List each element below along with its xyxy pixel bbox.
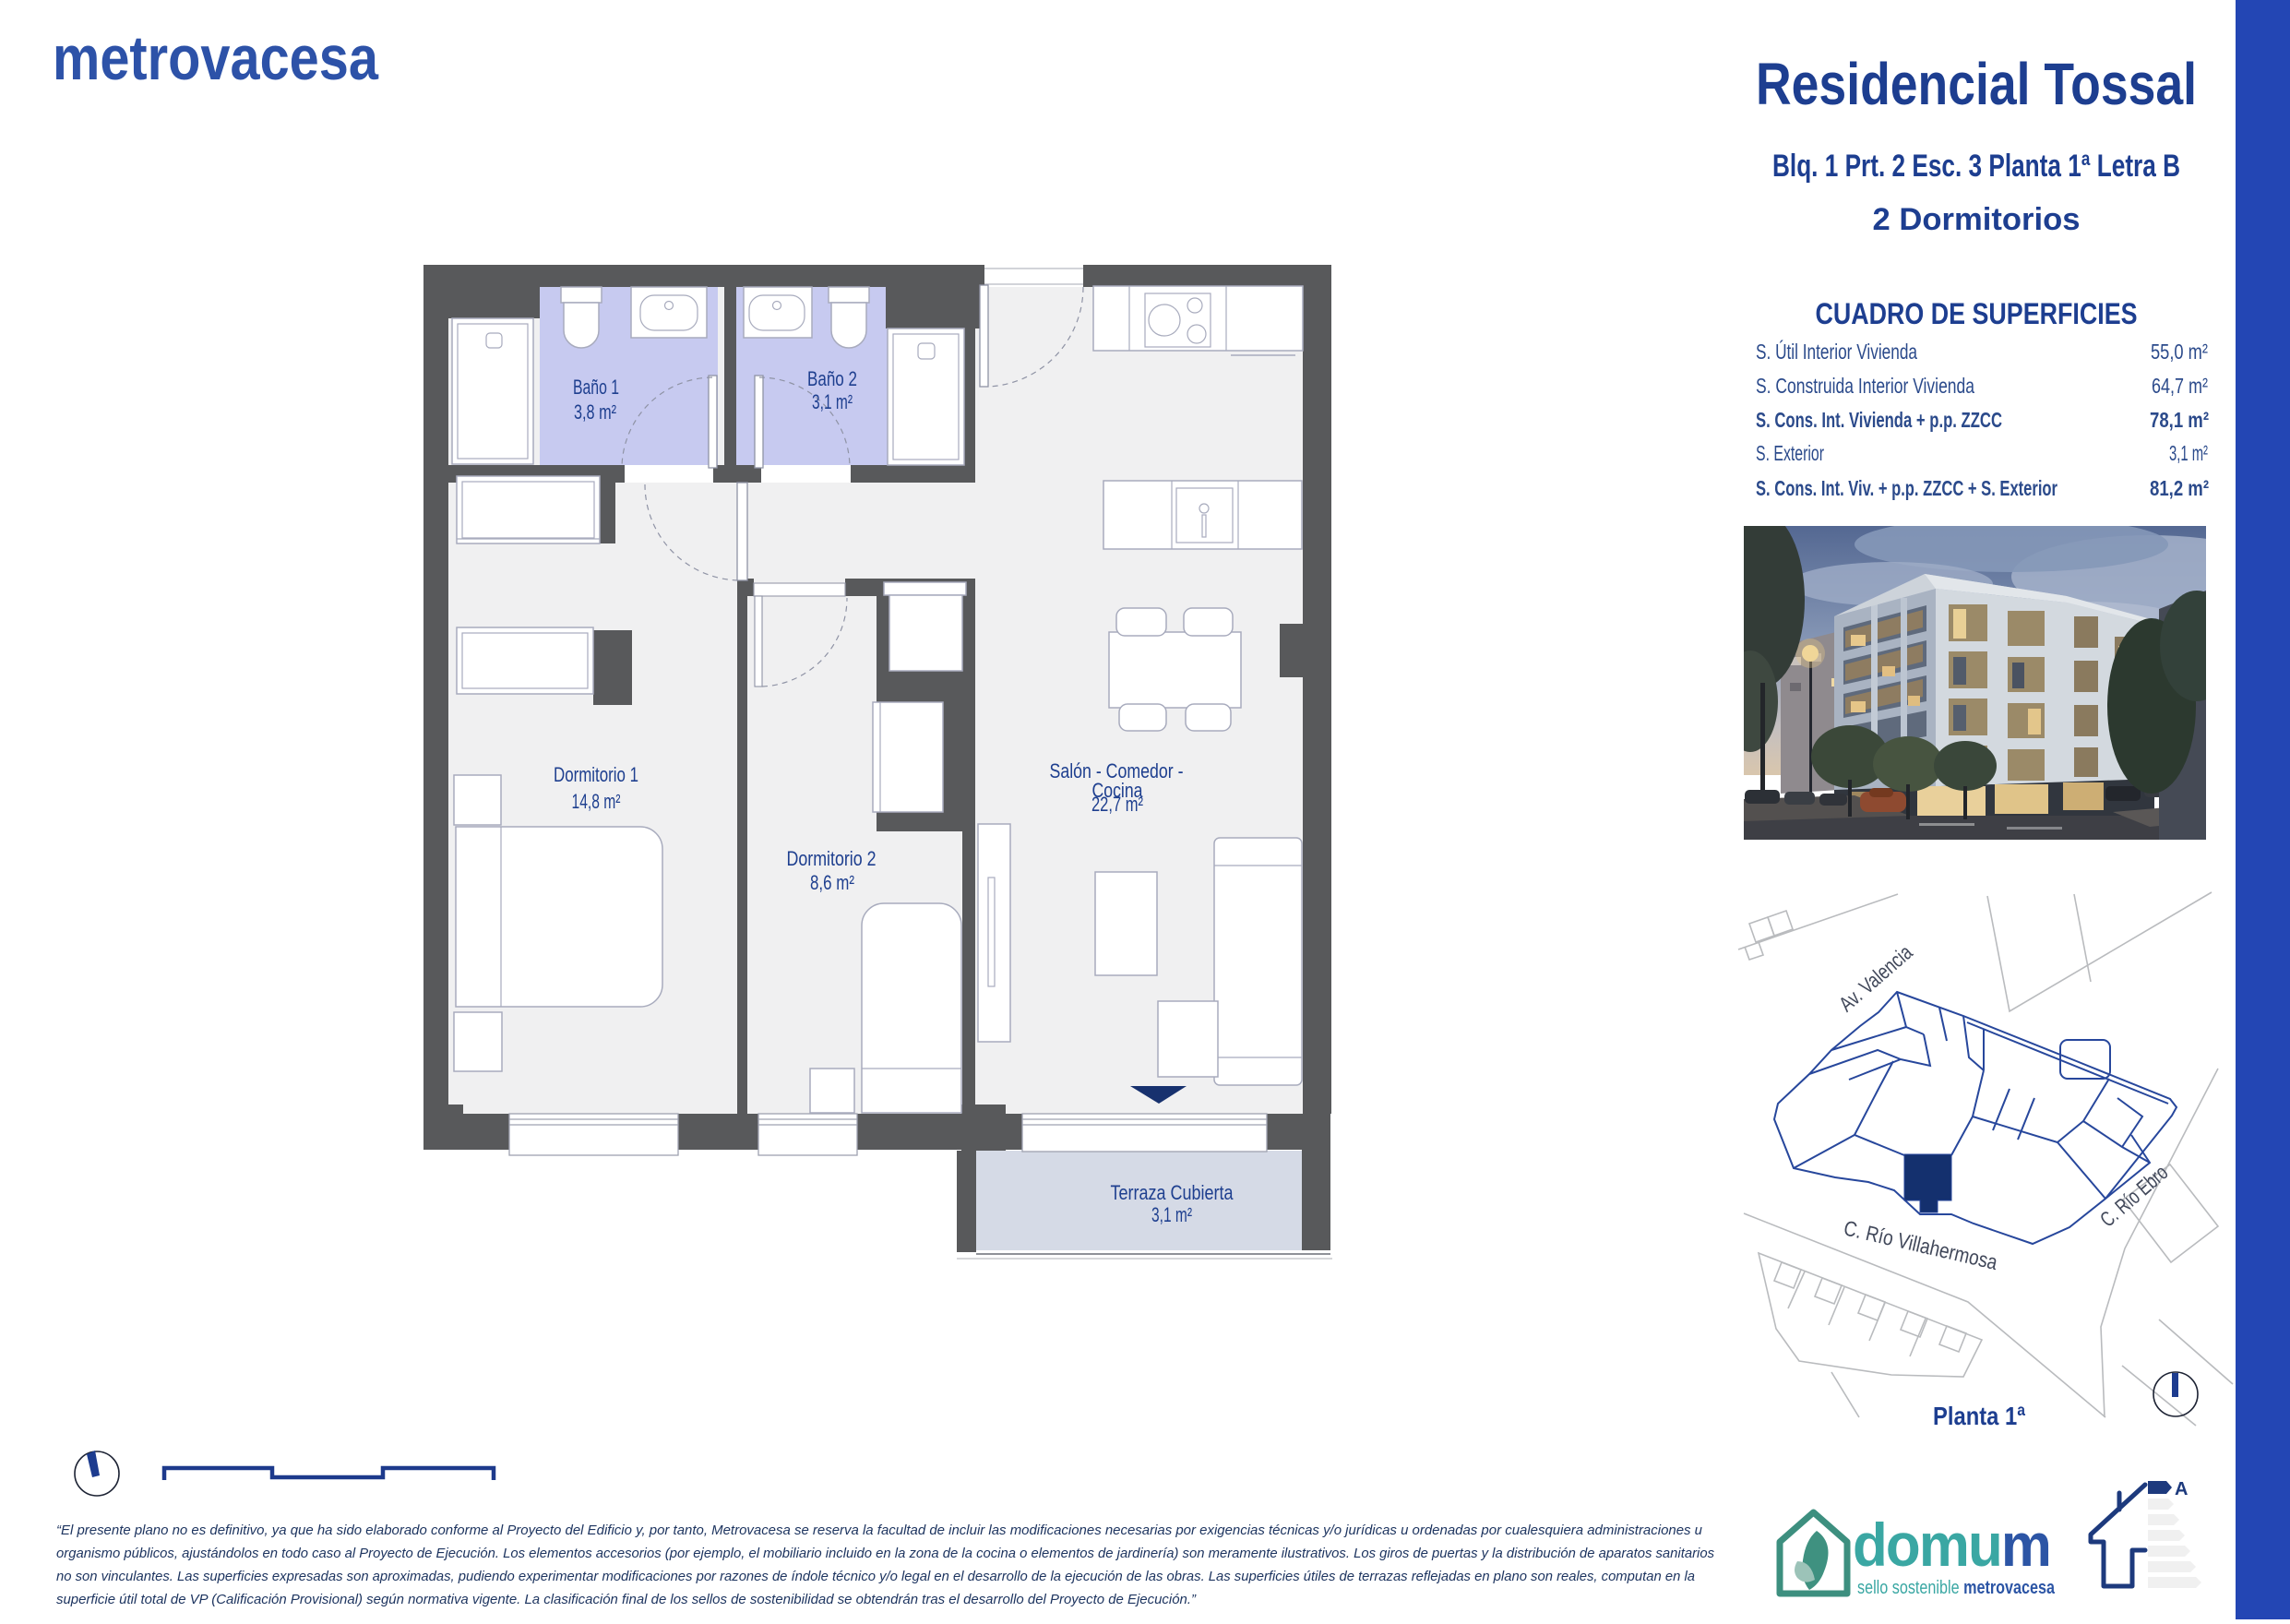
svg-text:A: A xyxy=(2175,1479,2188,1499)
svg-text:superficie útil total de VP (C: superficie útil total de VP (Calificació… xyxy=(56,1592,1197,1607)
svg-text:64,7 m²: 64,7 m² xyxy=(2152,374,2208,398)
svg-text:metrovacesa: metrovacesa xyxy=(53,23,379,93)
svg-text:S. Cons. Int. Viv. + p.p. ZZCC: S. Cons. Int. Viv. + p.p. ZZCC + S. Exte… xyxy=(1756,476,2057,500)
svg-text:Terraza Cubierta: Terraza Cubierta xyxy=(1111,1181,1234,1204)
svg-text:Planta 1ª: Planta 1ª xyxy=(1933,1402,2026,1430)
svg-text:55,0 m²: 55,0 m² xyxy=(2151,340,2208,364)
svg-text:Residencial Tossal: Residencial Tossal xyxy=(1756,51,2197,117)
svg-text:8,6 m²: 8,6 m² xyxy=(810,871,854,894)
svg-text:3,1 m²: 3,1 m² xyxy=(812,390,853,413)
svg-text:Dormitorio 1: Dormitorio 1 xyxy=(554,763,638,786)
svg-text:S. Cons. Int. Vivienda + p.p.: S. Cons. Int. Vivienda + p.p. ZZCC xyxy=(1756,408,2002,432)
svg-text:3,1 m²: 3,1 m² xyxy=(2169,441,2208,465)
svg-text:S. Útil Interior Vivienda: S. Útil Interior Vivienda xyxy=(1756,340,1917,364)
svg-text:Baño 1: Baño 1 xyxy=(573,376,619,399)
svg-text:S. Construida Interior Viviend: S. Construida Interior Vivienda xyxy=(1756,374,1974,398)
svg-text:sello sostenible metrovacesa: sello sostenible metrovacesa xyxy=(1857,1578,2056,1598)
svg-text:Blq. 1 Prt. 2 Esc. 3 Planta 1ª: Blq. 1 Prt. 2 Esc. 3 Planta 1ª Letra B xyxy=(1772,149,2180,184)
svg-text:domum: domum xyxy=(1853,1511,2050,1579)
svg-text:22,7 m²: 22,7 m² xyxy=(1091,793,1143,816)
svg-text:2 Dormitorios: 2 Dormitorios xyxy=(1873,202,2081,237)
svg-text:Baño 2: Baño 2 xyxy=(807,367,857,390)
svg-text:CUADRO DE SUPERFICIES: CUADRO DE SUPERFICIES xyxy=(1816,297,2138,330)
svg-text:organismo públicos, ajustándol: organismo públicos, ajustándolos en todo… xyxy=(56,1546,1714,1561)
svg-text:S. Exterior: S. Exterior xyxy=(1756,441,1824,465)
svg-text:3,8 m²: 3,8 m² xyxy=(574,400,616,424)
svg-text:3,1 m²: 3,1 m² xyxy=(1151,1203,1192,1226)
svg-text:“El presente plano no es defin: “El presente plano no es definitivo, ya … xyxy=(56,1522,1703,1538)
svg-text:81,2 m²: 81,2 m² xyxy=(2150,476,2209,500)
svg-text:no son vinculantes. Las superf: no son vinculantes. Las superficies expr… xyxy=(56,1569,1695,1584)
svg-text:78,1 m²: 78,1 m² xyxy=(2150,408,2209,432)
svg-text:Dormitorio 2: Dormitorio 2 xyxy=(787,847,877,870)
svg-text:14,8 m²: 14,8 m² xyxy=(572,790,621,813)
